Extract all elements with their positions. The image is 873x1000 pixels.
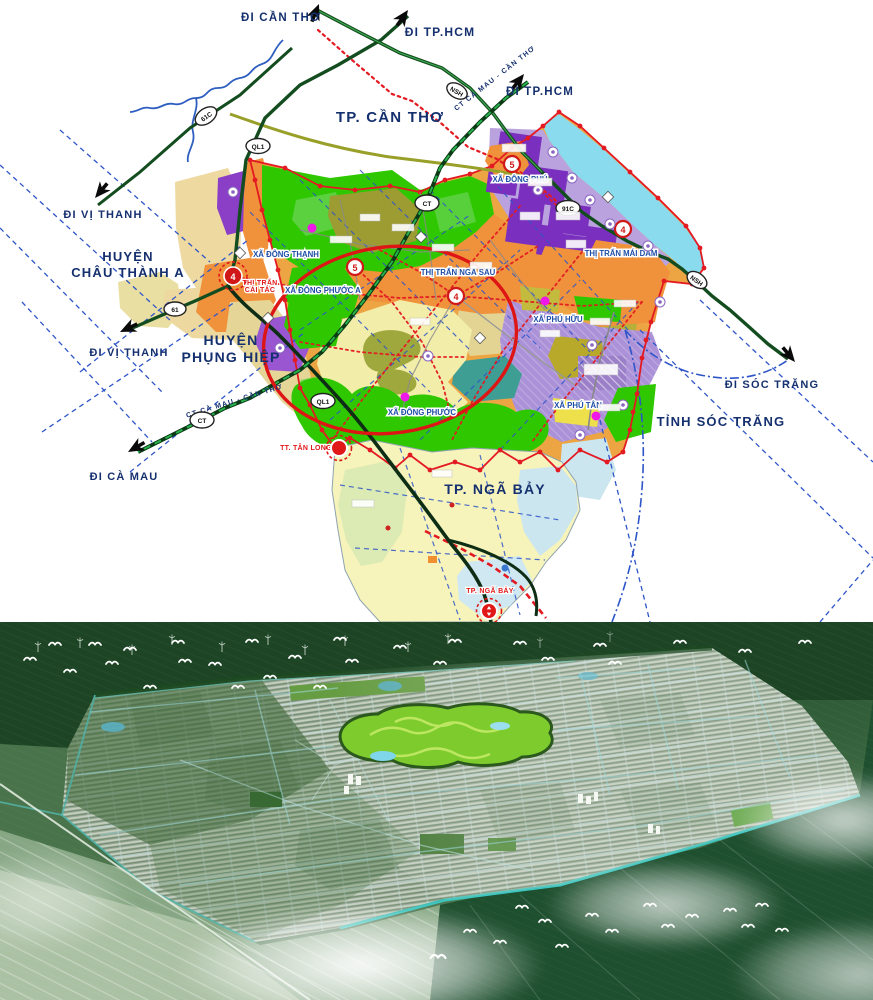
svg-text:HUYỆN: HUYỆN xyxy=(203,331,258,348)
svg-text:CHÂU THÀNH A: CHÂU THÀNH A xyxy=(71,265,185,280)
svg-text:ĐI TP.HCM: ĐI TP.HCM xyxy=(506,86,574,98)
svg-text:CT: CT xyxy=(198,418,207,425)
svg-text:XÃ PHÚ TÂN: XÃ PHÚ TÂN xyxy=(554,401,602,410)
svg-text:61: 61 xyxy=(171,307,179,314)
svg-text:ĐI VỊ THANH: ĐI VỊ THANH xyxy=(89,347,168,359)
svg-text:ĐI SÓC TRĂNG: ĐI SÓC TRĂNG xyxy=(725,378,819,391)
svg-text:TP. CẦN THƠ: TP. CẦN THƠ xyxy=(336,109,444,126)
svg-text:TP. NGÃ BẢY: TP. NGÃ BẢY xyxy=(444,480,546,497)
svg-text:4: 4 xyxy=(230,272,235,282)
svg-text:ĐI TP.HCM: ĐI TP.HCM xyxy=(405,25,476,39)
svg-text:ĐI CẦN THƠ: ĐI CẦN THƠ xyxy=(241,11,321,24)
svg-text:HUYỆN: HUYỆN xyxy=(102,249,154,264)
svg-text:5: 5 xyxy=(509,160,514,170)
svg-text:5: 5 xyxy=(352,263,357,273)
svg-text:4: 4 xyxy=(620,225,625,235)
svg-text:CT: CT xyxy=(423,201,432,208)
svg-text:XÃ ĐÔNG PHƯỚC: XÃ ĐÔNG PHƯỚC xyxy=(388,408,457,417)
svg-text:QL1: QL1 xyxy=(317,399,330,406)
svg-text:4: 4 xyxy=(453,292,458,302)
svg-text:QL1: QL1 xyxy=(252,144,265,151)
svg-text:XÃ ĐÔNG THẠNH: XÃ ĐÔNG THẠNH xyxy=(253,250,319,259)
svg-text:TỈNH SÓC TRĂNG: TỈNH SÓC TRĂNG xyxy=(657,414,786,429)
svg-text:ĐI VỊ THANH: ĐI VỊ THANH xyxy=(63,209,142,221)
svg-text:PHỤNG HIỆP: PHỤNG HIỆP xyxy=(181,348,280,365)
svg-text:XÃ ĐÔNG PHƯỚC A: XÃ ĐÔNG PHƯỚC A xyxy=(285,286,361,295)
svg-text:ĐI CÀ MAU: ĐI CÀ MAU xyxy=(90,470,159,483)
svg-text:XÃ PHÚ HỮU: XÃ PHÚ HỮU xyxy=(533,315,583,324)
svg-text:TT. TÂN LONG: TT. TÂN LONG xyxy=(280,443,332,452)
svg-text:TP. NGÃ BẢY: TP. NGÃ BẢY xyxy=(466,586,514,595)
svg-text:CÁI TẮC: CÁI TẮC xyxy=(245,285,276,294)
